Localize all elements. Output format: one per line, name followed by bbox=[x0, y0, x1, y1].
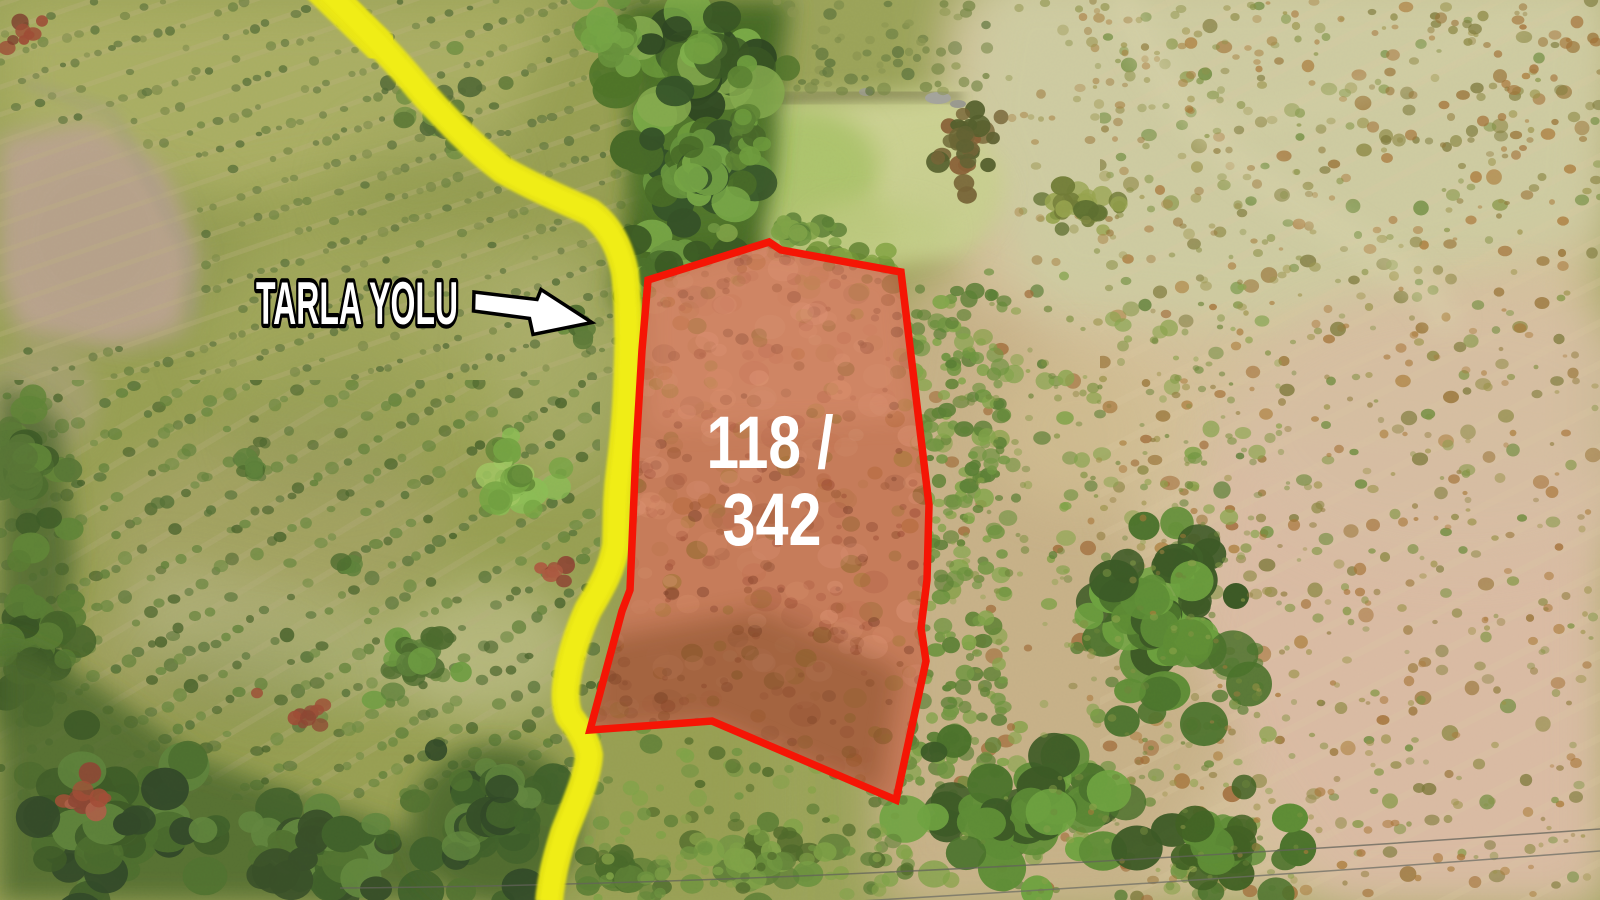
svg-text:118 /: 118 / bbox=[707, 401, 834, 484]
svg-text:342: 342 bbox=[723, 478, 822, 561]
svg-text:TARLA YOLU: TARLA YOLU bbox=[256, 270, 458, 337]
